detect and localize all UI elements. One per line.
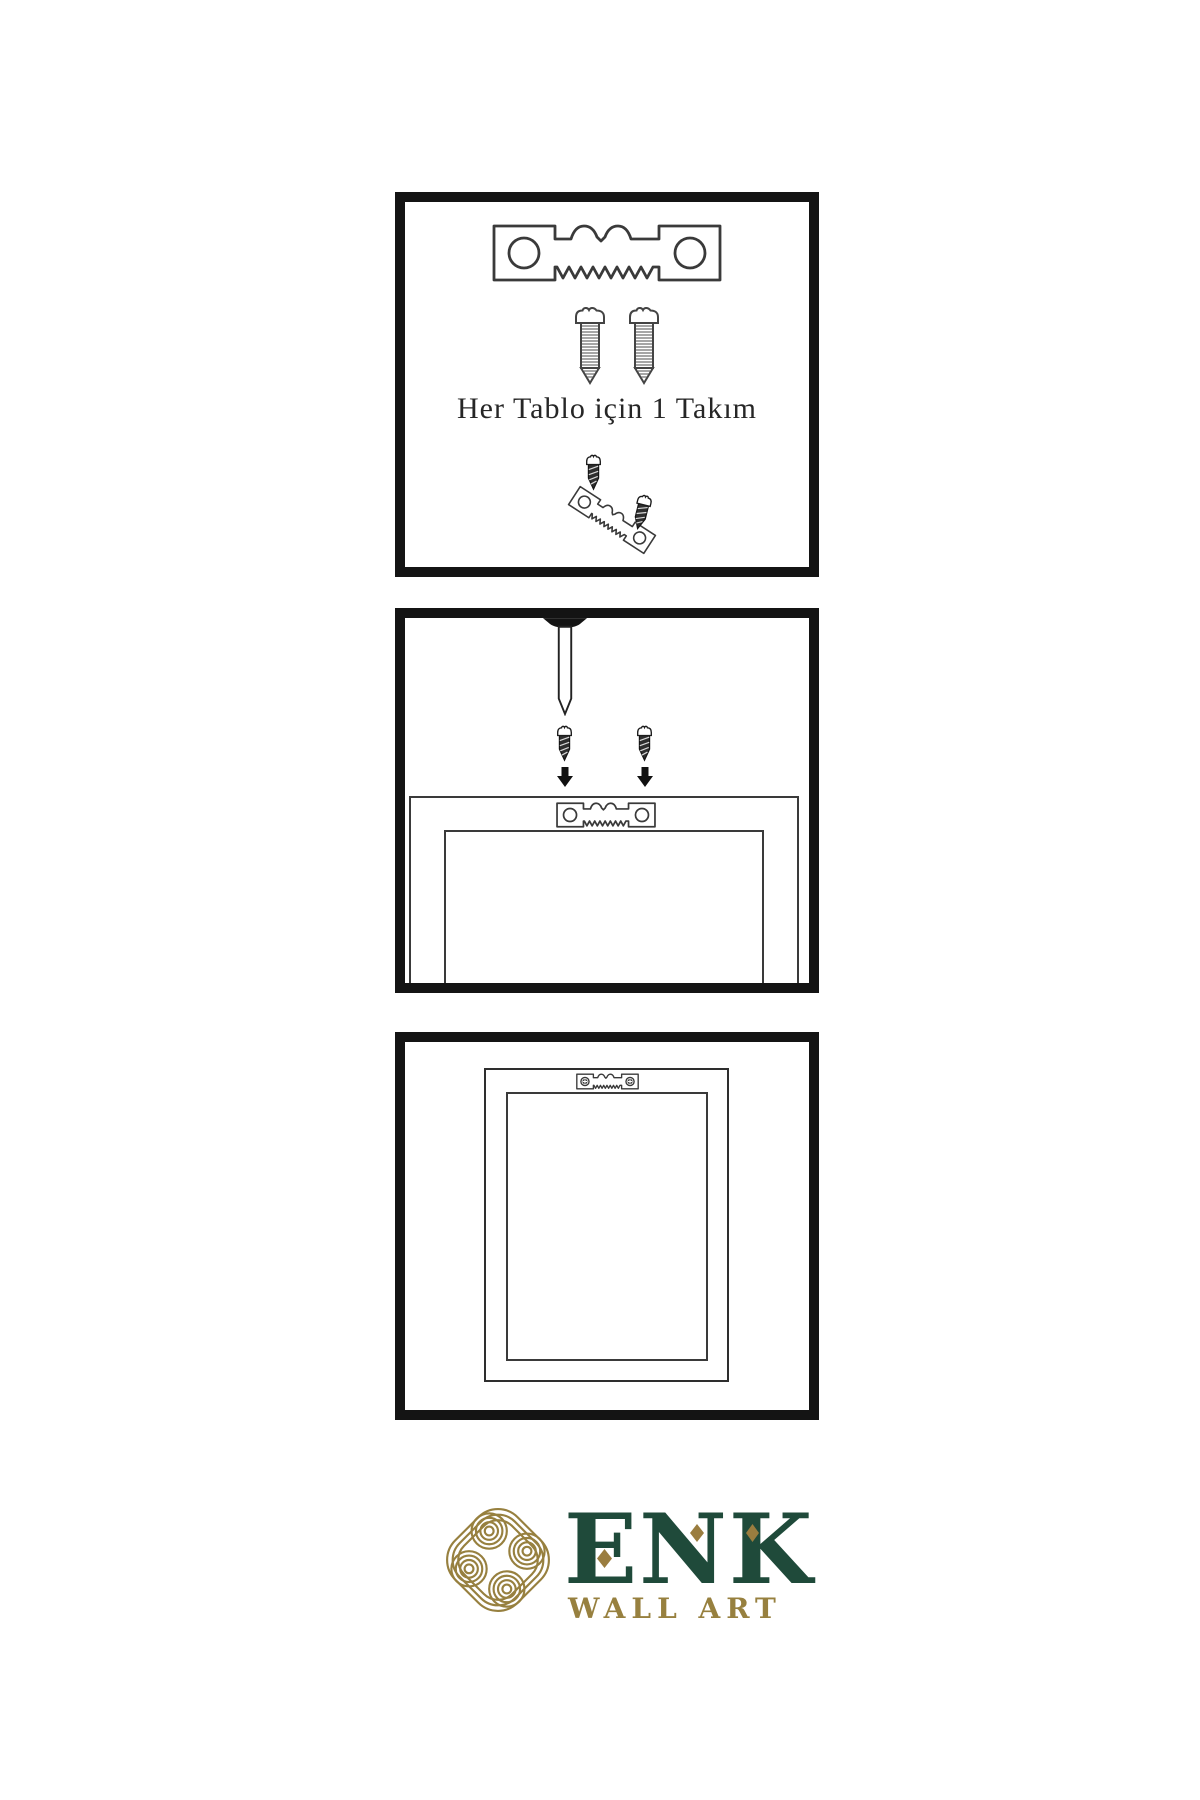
panel-hardware-kit: Her Tablo için 1 Takım [395,192,819,577]
screw-icon [636,725,653,763]
screw-icon [629,493,655,534]
panel-wall-mounting [395,608,819,993]
sawtooth-hanger-icon [491,223,723,283]
frame-back-inner-outline [444,830,764,993]
screw-icon [585,454,602,492]
arrow-down-icon [557,767,573,787]
picture-frame-inner-outline [506,1092,708,1361]
brand-name: ENK [564,1502,814,1598]
screw-icon [573,307,607,385]
screw-icon [627,307,661,385]
arrow-down-icon [637,767,653,787]
sawtooth-hanger-mounted-icon [576,1073,639,1090]
panel-hanging [395,1032,819,1420]
wall-nail-icon [542,618,588,716]
instruction-sheet: Her Tablo için 1 Takım [0,0,1200,1800]
kit-caption: Her Tablo için 1 Takım [405,392,809,426]
knot-emblem-icon [435,1497,561,1623]
screw-icon [556,725,573,763]
sawtooth-hanger-icon [555,802,657,828]
brand-tagline: WALL ART [568,1592,782,1625]
